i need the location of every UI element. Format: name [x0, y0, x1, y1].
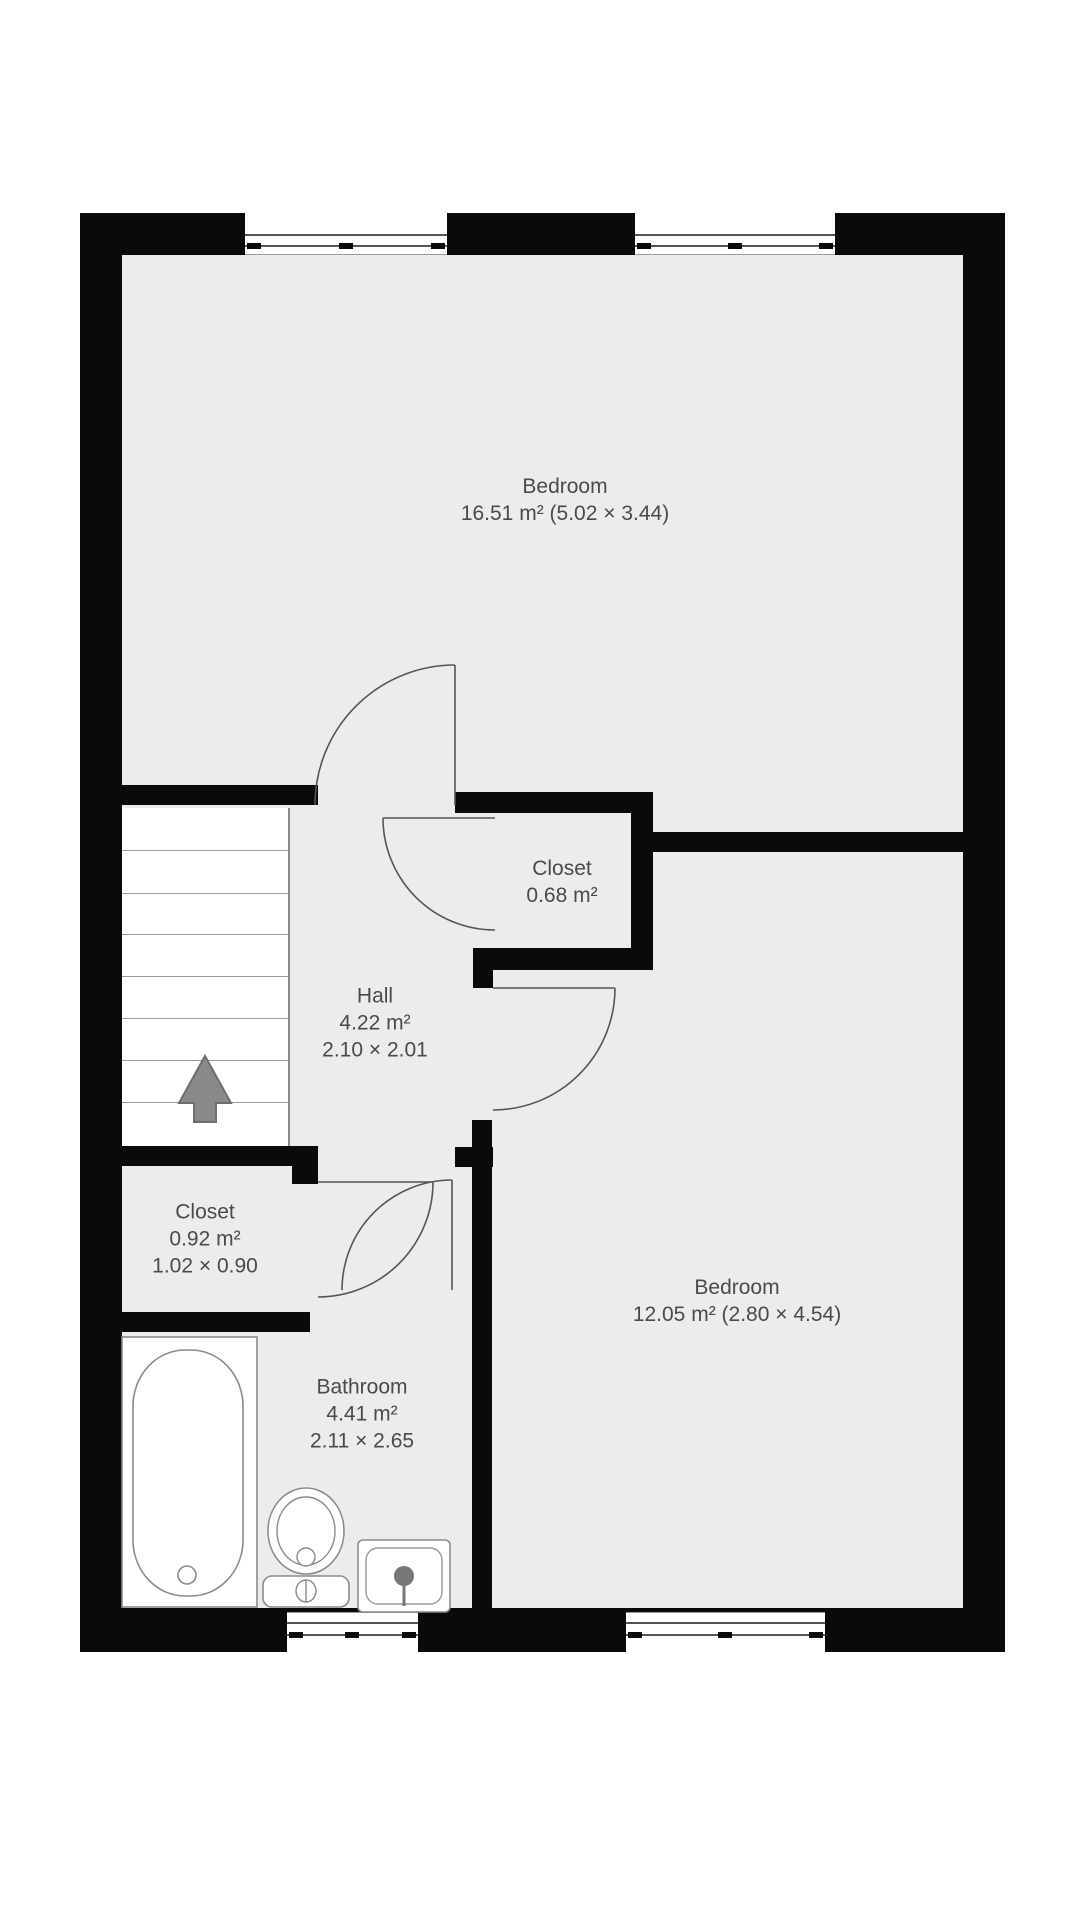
room-name: Bedroom [633, 1274, 841, 1301]
room-label-hall: Hall 4.22 m² 2.10 × 2.01 [322, 983, 428, 1064]
toilet-icon [263, 1488, 349, 1607]
room-area: 4.22 m² [322, 1010, 428, 1037]
room-name: Closet [152, 1199, 258, 1226]
door-closet-left [318, 1182, 433, 1297]
door-bedroom-bottom [493, 988, 615, 1110]
room-dimensions: 1.02 × 0.90 [152, 1253, 258, 1280]
room-label-bedroom-top: Bedroom 16.51 m² (5.02 × 3.44) [461, 473, 669, 527]
room-details: 12.05 m² (2.80 × 4.54) [633, 1301, 841, 1328]
bathtub-icon [122, 1337, 257, 1607]
door-bedroom-top [315, 665, 455, 805]
room-label-closet-left: Closet 0.92 m² 1.02 × 0.90 [152, 1199, 258, 1280]
door-bathroom [342, 1180, 452, 1290]
room-label-bathroom: Bathroom 4.41 m² 2.11 × 2.65 [310, 1374, 414, 1455]
room-name: Bathroom [310, 1374, 414, 1401]
room-area: 4.41 m² [310, 1401, 414, 1428]
room-area: 0.92 m² [152, 1226, 258, 1253]
room-details: 16.51 m² (5.02 × 3.44) [461, 500, 669, 527]
sink-icon [358, 1540, 450, 1612]
floor-plan-canvas: Bedroom 16.51 m² (5.02 × 3.44) Closet 0.… [0, 0, 1080, 1920]
room-label-bedroom-bottom: Bedroom 12.05 m² (2.80 × 4.54) [633, 1274, 841, 1328]
room-name: Bedroom [461, 473, 669, 500]
door-closet-small [383, 818, 495, 930]
room-dimensions: 2.11 × 2.65 [310, 1428, 414, 1455]
room-area: 0.68 m² [526, 882, 597, 909]
stairs-up-arrow-icon [179, 1056, 231, 1122]
doors-and-fixtures-layer [0, 0, 1080, 1920]
room-name: Closet [526, 855, 597, 882]
room-name: Hall [322, 983, 428, 1010]
room-dimensions: 2.10 × 2.01 [322, 1037, 428, 1064]
room-label-closet-small: Closet 0.68 m² [526, 855, 597, 909]
